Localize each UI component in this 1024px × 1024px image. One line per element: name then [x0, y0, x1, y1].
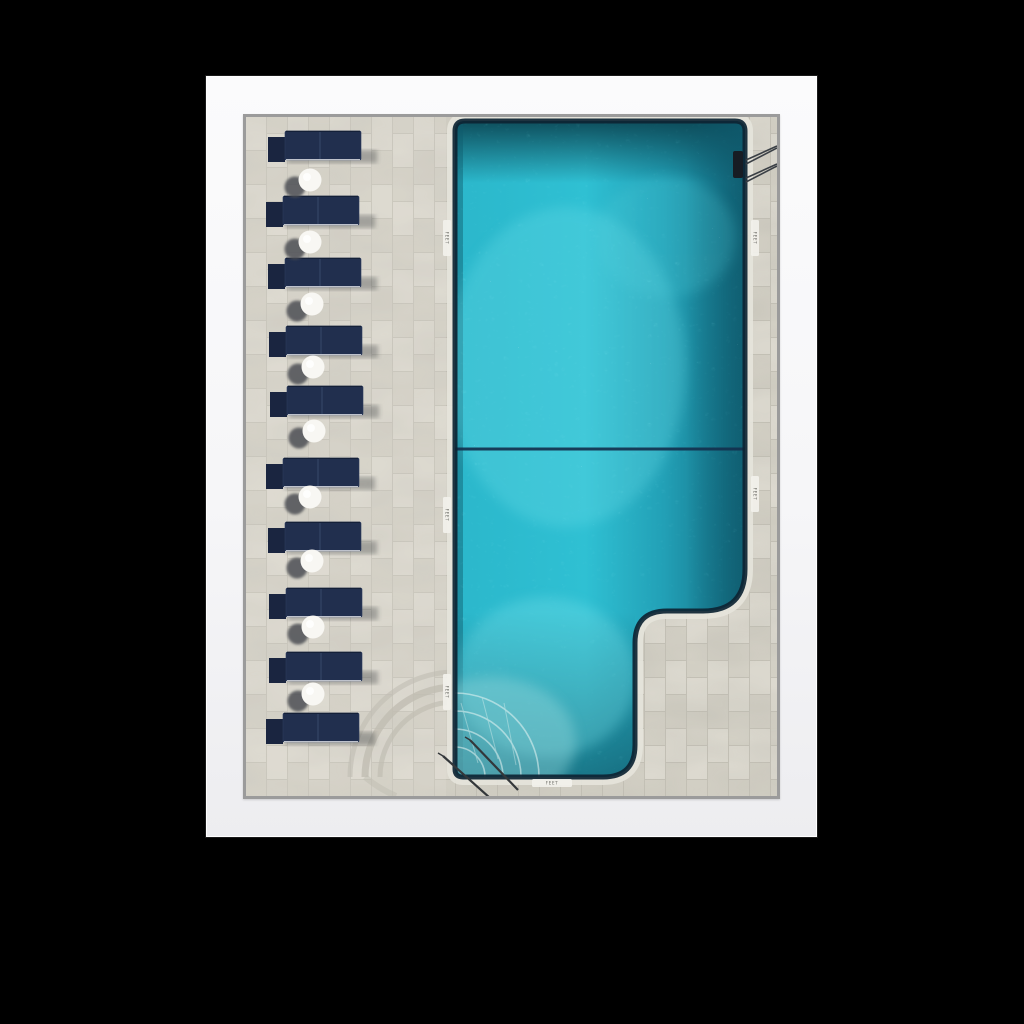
svg-text:FEET: FEET: [445, 686, 450, 699]
depth-marker: FEET: [443, 220, 451, 256]
depth-marker: FEET: [751, 220, 759, 256]
picture-frame: FEETFEETFEETFEETFEETFEET: [206, 76, 817, 837]
depth-marker: FEET: [443, 674, 451, 710]
depth-marker: FEET: [443, 497, 451, 533]
svg-text:FEET: FEET: [753, 488, 758, 501]
svg-text:FEET: FEET: [445, 232, 450, 245]
background: FEETFEETFEETFEETFEETFEET: [0, 0, 1024, 1024]
svg-text:FEET: FEET: [546, 781, 559, 786]
depth-marker: FEET: [751, 476, 759, 512]
svg-text:FEET: FEET: [753, 232, 758, 245]
depth-marker: FEET: [532, 779, 572, 787]
svg-text:FEET: FEET: [445, 509, 450, 522]
framed-photo: FEETFEETFEETFEETFEETFEET: [243, 114, 780, 799]
aerial-pool-scene: FEETFEETFEETFEETFEETFEET: [246, 117, 777, 796]
